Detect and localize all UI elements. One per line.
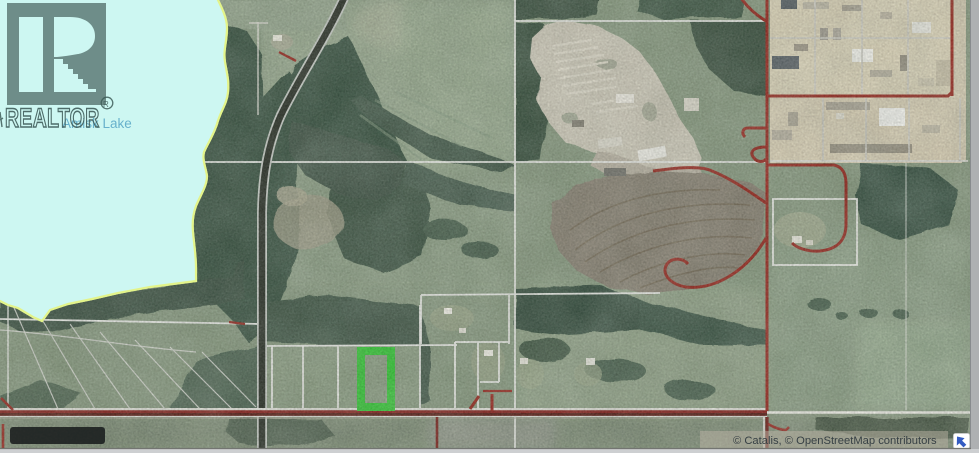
svg-text:REALTOR: REALTOR (5, 103, 100, 133)
svg-text:© Catalis, © OpenStreetMap con: © Catalis, © OpenStreetMap contributors (733, 435, 937, 447)
svg-text:R: R (103, 100, 109, 109)
